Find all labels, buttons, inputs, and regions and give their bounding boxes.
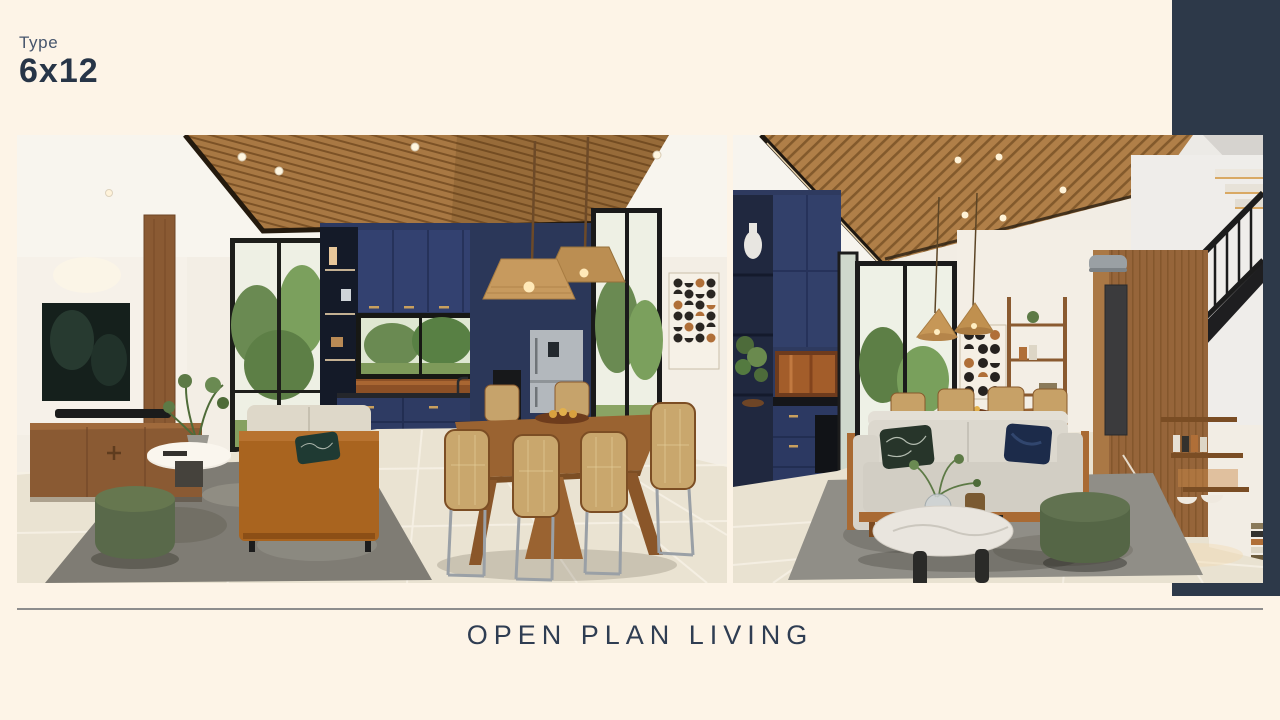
door <box>144 215 175 432</box>
divider-line <box>17 608 1263 610</box>
render-left-image <box>17 135 727 583</box>
render-right-image <box>733 135 1263 583</box>
type-value: 6x12 <box>19 54 99 90</box>
type-block: Type 6x12 <box>19 33 99 90</box>
pouf <box>1040 492 1130 572</box>
sofa <box>239 405 379 552</box>
render-right-scene <box>733 135 1263 583</box>
render-left-scene <box>17 135 727 583</box>
type-label: Type <box>19 33 99 53</box>
geometric-artwork <box>669 273 719 369</box>
navy-cabinet <box>733 190 841 515</box>
pouf <box>91 486 179 569</box>
page-title: OPEN PLAN LIVING <box>0 620 1280 651</box>
slide: Type 6x12 <box>0 0 1280 720</box>
